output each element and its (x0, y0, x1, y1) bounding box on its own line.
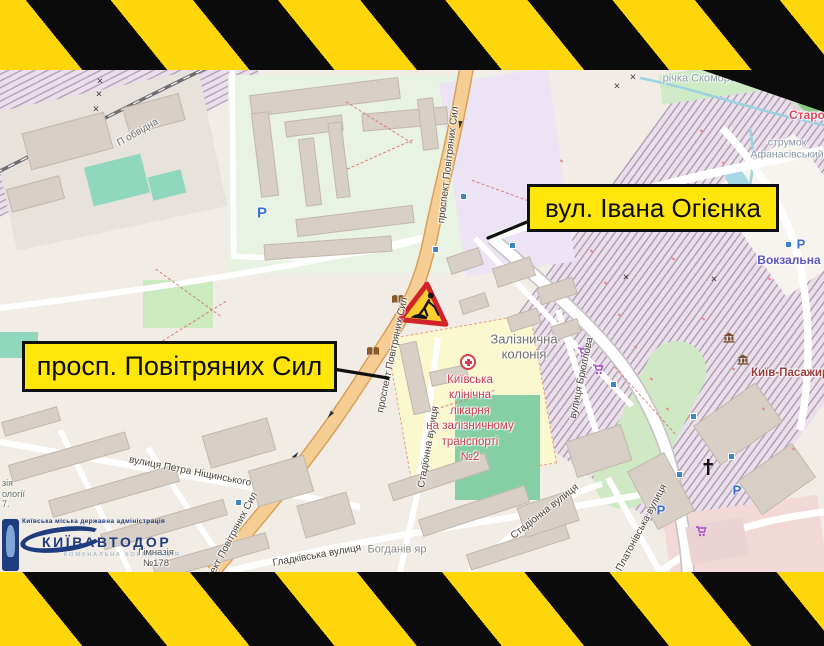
stop-marker (460, 193, 467, 200)
map-speck (722, 161, 726, 164)
building (298, 137, 322, 206)
footpath-dashed (347, 139, 413, 169)
callout-povitrianykh-text: просп. Повітряних Сил (37, 351, 323, 382)
building (249, 77, 401, 117)
parking-icon: Р (733, 483, 742, 498)
building (296, 491, 355, 538)
building (1, 406, 61, 436)
footpath-dashed (158, 301, 226, 344)
map-speck (590, 249, 594, 252)
logo-admin-text: Київська міська державна адміністрація (22, 518, 165, 525)
logo-title: КИЇВАВТОДОР (42, 534, 171, 550)
building (6, 175, 65, 212)
place-label-fragments: зія ології 7. (2, 478, 25, 510)
stop-marker (610, 381, 617, 388)
callout-povitrianykh-syl: просп. Повітряних Сил (22, 341, 337, 392)
hazard-stripe-top (0, 0, 824, 70)
building (693, 383, 783, 466)
building (417, 97, 439, 151)
building (446, 247, 484, 275)
hospital-cross-icon (460, 354, 476, 370)
hazard-stripe-bottom (0, 572, 824, 646)
parking-icon: Р (257, 205, 267, 222)
callout-ohiienka: вул. Івана Огієнка (527, 184, 779, 232)
footpath-dashed (615, 367, 676, 435)
place-label-vokzalna: Вокзальна (757, 253, 820, 267)
building (738, 443, 816, 515)
crossing-marker: × (93, 105, 99, 116)
map-speck (604, 281, 608, 284)
building (22, 112, 114, 171)
stop-marker (676, 471, 683, 478)
map-speck (666, 407, 670, 410)
building (685, 517, 749, 564)
map-speck (672, 257, 676, 260)
map-speck (650, 377, 654, 380)
map-canvas[interactable]: Р Р Р Р × × × × × × × проспект Повітряни… (0, 70, 824, 572)
crossing-marker: × (711, 275, 717, 286)
stop-marker (509, 242, 516, 249)
building (506, 307, 541, 332)
supermarket-icon (592, 364, 604, 375)
library-icon (366, 346, 380, 357)
stop-marker (235, 499, 242, 506)
stop-marker (728, 453, 735, 460)
place-label-strumok: струмок Афанасівський (750, 137, 823, 162)
building (295, 205, 414, 237)
building (327, 121, 350, 198)
map-speck (634, 345, 638, 348)
crossing-marker: × (97, 77, 103, 88)
map-speck (702, 317, 706, 320)
building (202, 417, 277, 468)
place-label-kyiv-pasazhyrskyi: Київ-Пасажир (751, 367, 824, 381)
crossing-marker: × (630, 73, 636, 84)
building (536, 277, 578, 306)
place-label-bohdaniv-yar: Богданів яр (368, 544, 427, 557)
parking-icon: Р (797, 237, 806, 252)
church-cross-icon (702, 458, 714, 476)
building (8, 432, 130, 483)
stop-marker (432, 246, 439, 253)
stop-marker (785, 241, 792, 248)
hospital-label: Київська клінічна лікарня на залізничном… (426, 373, 513, 465)
museum-icon (737, 354, 749, 365)
road-closure-poster: Р Р Р Р × × × × × × × проспект Повітряни… (0, 0, 824, 646)
map-speck (700, 129, 704, 132)
footpath-dashed (472, 180, 529, 201)
kyivavtodor-logo: Київська міська державна адміністрація К… (0, 509, 250, 575)
map-speck (560, 159, 564, 162)
building (251, 111, 279, 198)
building (492, 256, 536, 287)
building (458, 292, 489, 315)
logo-subtitle: КОМУНАЛЬНА КОРПОРАЦІЯ (64, 552, 181, 558)
map-speck (618, 313, 622, 316)
crossing-marker: × (614, 82, 620, 93)
building (264, 236, 393, 261)
kyiv-emblem-icon (2, 519, 19, 571)
callout-ohiienka-text: вул. Івана Огієнка (545, 193, 761, 224)
supermarket-icon (695, 526, 707, 537)
place-label-zaliznychna-koloniia: Залізнична колонія (490, 332, 557, 363)
museum-icon (723, 332, 735, 343)
crossing-marker: × (96, 90, 102, 101)
map-speck (768, 277, 772, 280)
stop-marker (690, 413, 697, 420)
building (566, 424, 633, 478)
map-speck (732, 367, 736, 370)
crossing-marker: × (623, 273, 629, 284)
